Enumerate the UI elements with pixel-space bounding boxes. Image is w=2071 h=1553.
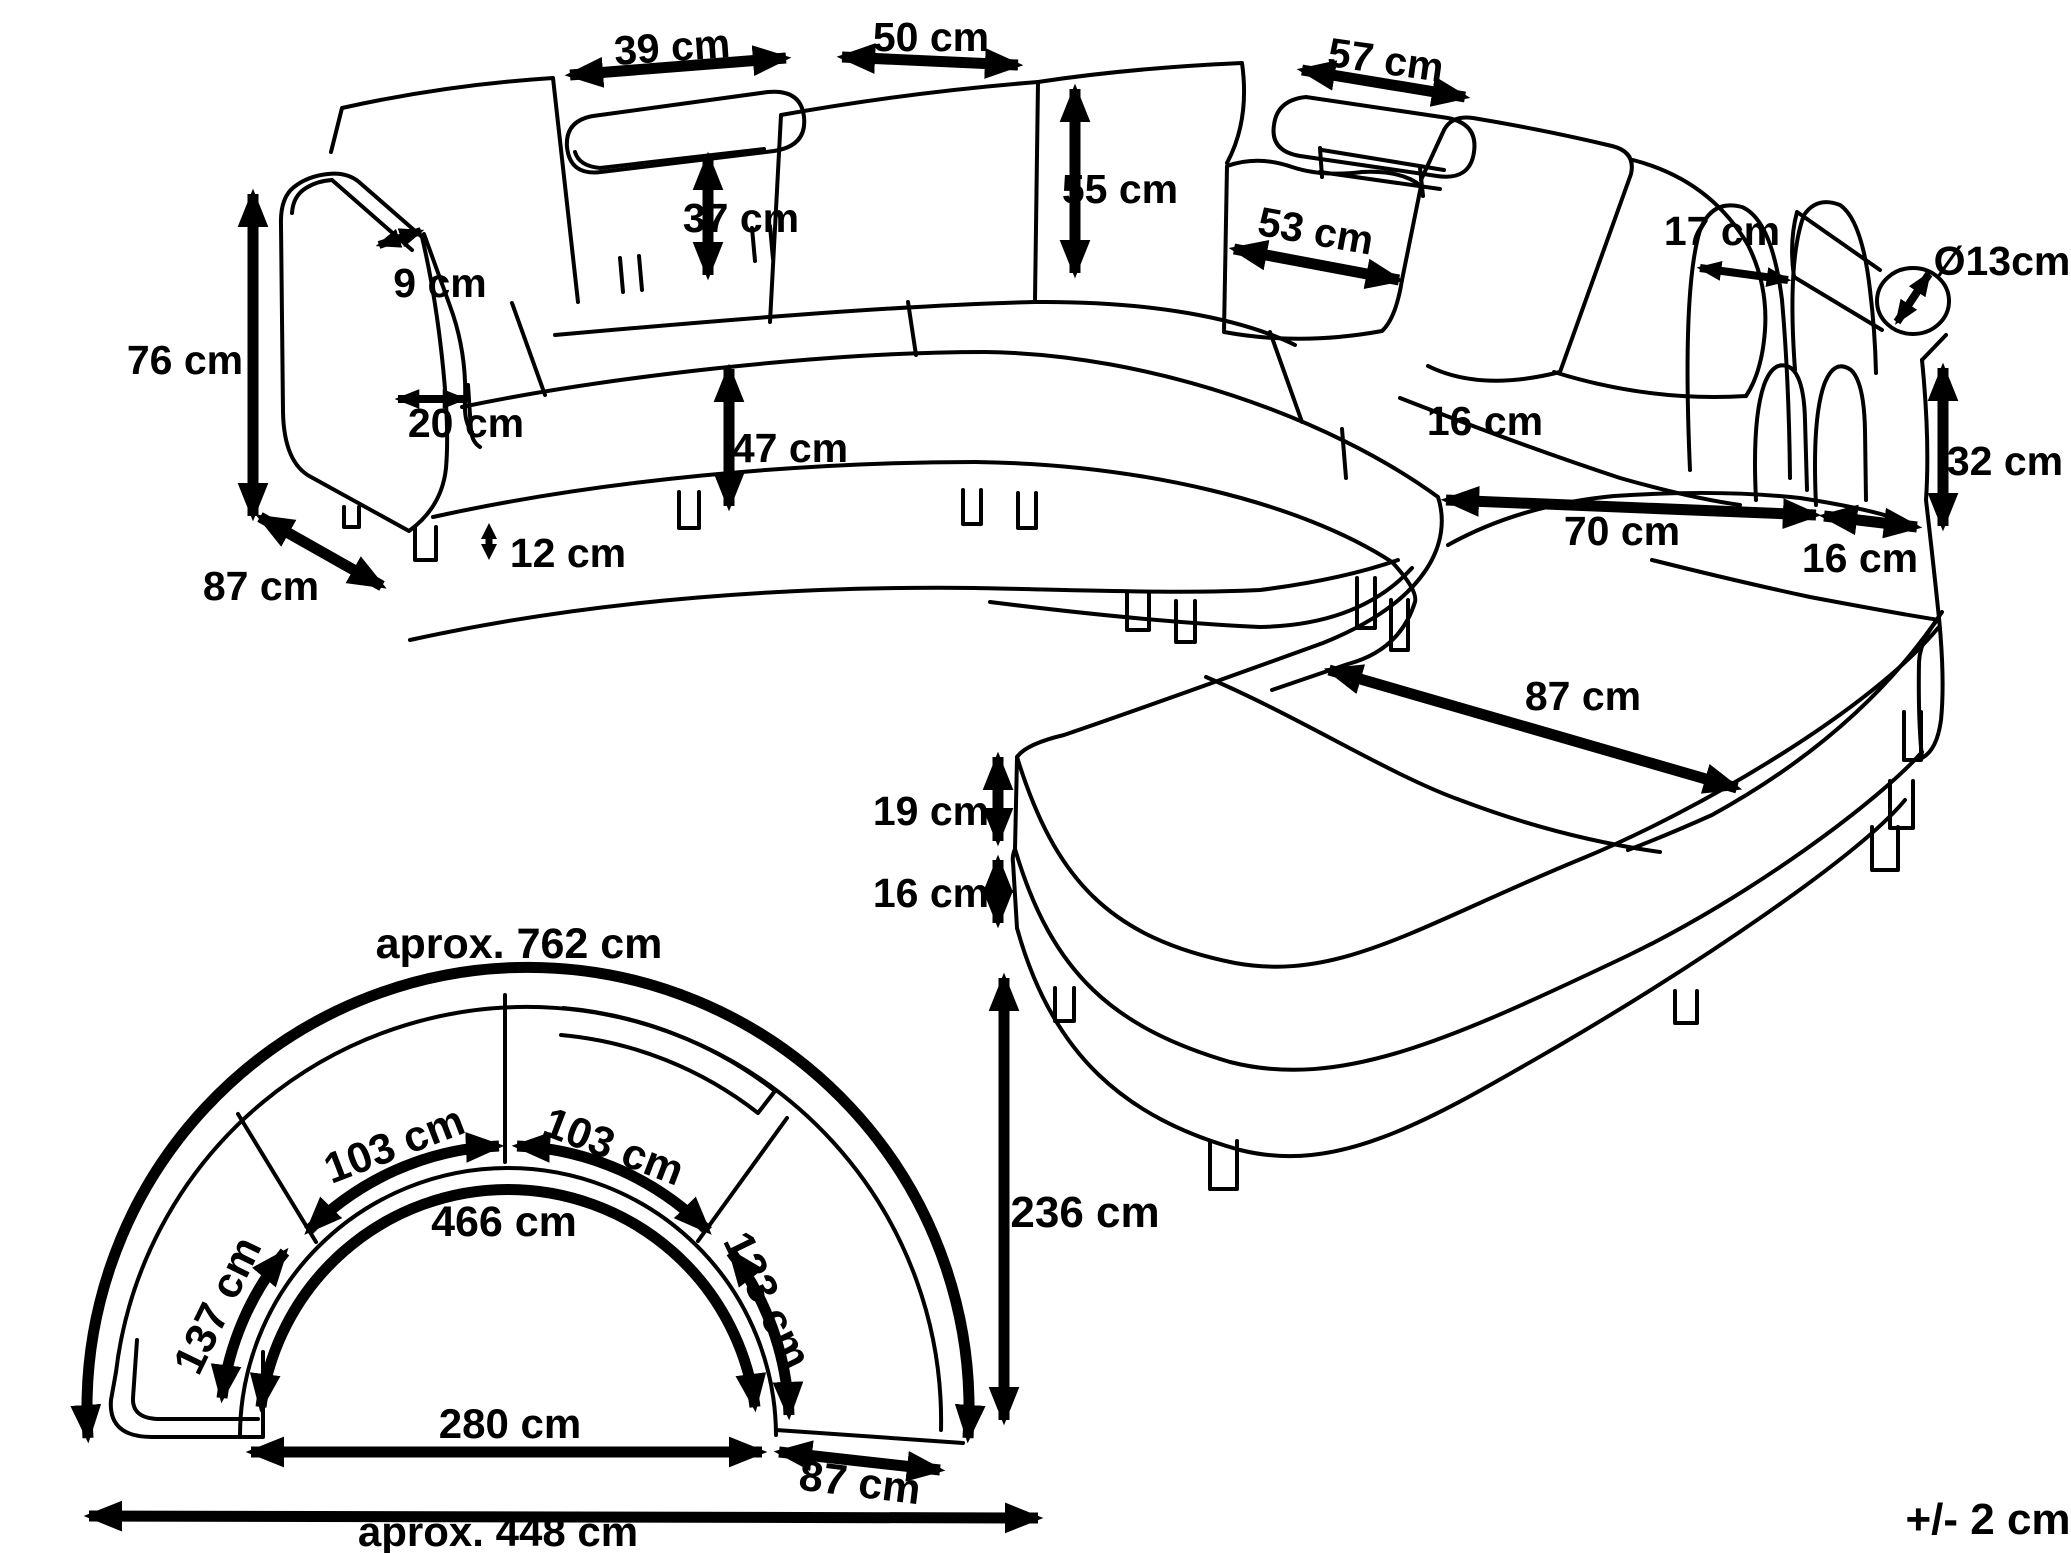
svg-text:aprox. 448 cm: aprox. 448 cm <box>358 1508 638 1553</box>
svg-text:70 cm: 70 cm <box>1564 508 1680 554</box>
svg-text:37 cm: 37 cm <box>683 195 799 241</box>
svg-text:19 cm: 19 cm <box>873 788 989 834</box>
svg-text:9 cm: 9 cm <box>393 260 486 306</box>
svg-text:32 cm: 32 cm <box>1947 438 2063 484</box>
svg-text:Ø13cm: Ø13cm <box>1934 238 2071 284</box>
svg-text:16 cm: 16 cm <box>1427 398 1543 444</box>
svg-text:87 cm: 87 cm <box>1525 673 1641 719</box>
svg-text:280 cm: 280 cm <box>439 1400 581 1447</box>
svg-text:+/- 2 cm: +/- 2 cm <box>1905 1495 2070 1544</box>
svg-text:16 cm: 16 cm <box>1802 535 1918 581</box>
svg-text:47 cm: 47 cm <box>732 425 848 471</box>
svg-text:76 cm: 76 cm <box>127 337 243 383</box>
svg-text:55 cm: 55 cm <box>1062 166 1178 212</box>
svg-text:50 cm: 50 cm <box>873 14 989 60</box>
svg-text:236 cm: 236 cm <box>1010 1188 1159 1237</box>
svg-text:87 cm: 87 cm <box>203 563 319 609</box>
svg-text:20 cm: 20 cm <box>408 400 524 446</box>
svg-text:466 cm: 466 cm <box>431 1198 577 1246</box>
svg-text:16 cm: 16 cm <box>873 870 989 916</box>
svg-text:12 cm: 12 cm <box>510 530 626 576</box>
svg-text:aprox. 762 cm: aprox. 762 cm <box>376 920 663 968</box>
svg-text:39 cm: 39 cm <box>612 20 731 74</box>
svg-text:17 cm: 17 cm <box>1664 208 1780 254</box>
